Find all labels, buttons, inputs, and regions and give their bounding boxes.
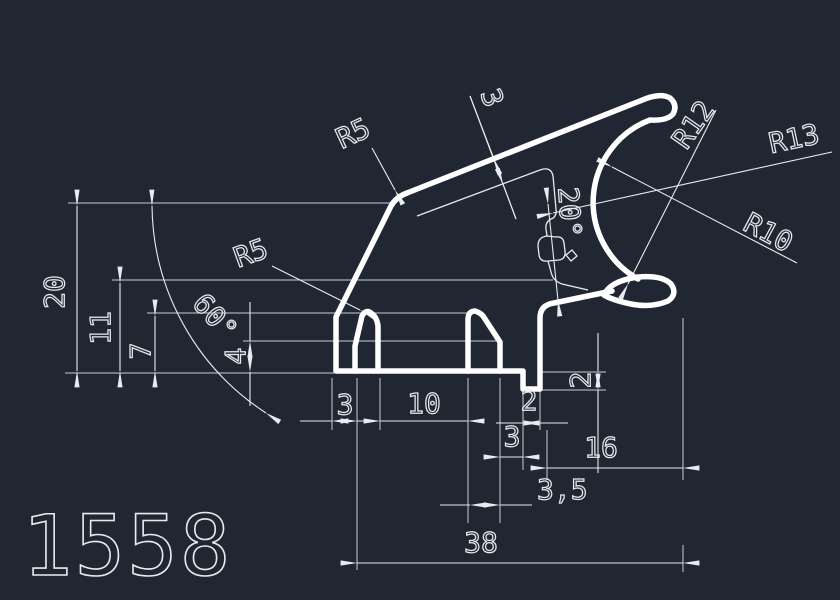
radius-label-r13: R13: [766, 117, 822, 160]
dimension-labels: 20 11 7 4 2 60° 20° 3 R5 R5 R12 R13 R10 …: [38, 84, 822, 559]
dimension-lines: [77, 96, 832, 563]
radius-label-r10: R10: [738, 206, 798, 259]
cad-drawing-stage: 20 11 7 4 2 60° 20° 3 R5 R5 R12 R13 R10 …: [0, 0, 840, 600]
dim-label-wall-3: 3: [474, 84, 511, 111]
radius-label-r5-left: R5: [229, 232, 272, 275]
dim-label-depth-2: 2: [564, 372, 597, 389]
dim-label-width-16: 16: [584, 431, 618, 464]
dim-label-width-2-groove: 2: [521, 384, 538, 417]
profile-outline: [336, 96, 675, 389]
dim-label-height-11: 11: [84, 311, 117, 345]
part-number: 1558: [22, 497, 232, 595]
dim-label-width-10: 10: [407, 387, 441, 420]
dim-label-height-4: 4: [219, 348, 252, 365]
dim-label-angle-60: 60°: [186, 287, 244, 347]
radius-label-r5-top: R5: [331, 111, 376, 155]
profile-upper-wall-and-hook: [407, 96, 675, 279]
dim-label-width-3-5: 3,5: [537, 473, 588, 506]
dim-label-height-7: 7: [124, 343, 157, 360]
dim-label-angle-20: 20°: [551, 186, 587, 239]
dim-label-height-20: 20: [38, 275, 71, 309]
dim-label-width-38: 38: [464, 526, 498, 559]
dim-label-width-3-right: 3: [504, 420, 521, 453]
dim-label-width-3-left: 3: [337, 388, 354, 421]
cad-profile-drawing: 20 11 7 4 2 60° 20° 3 R5 R5 R12 R13 R10 …: [0, 0, 840, 600]
